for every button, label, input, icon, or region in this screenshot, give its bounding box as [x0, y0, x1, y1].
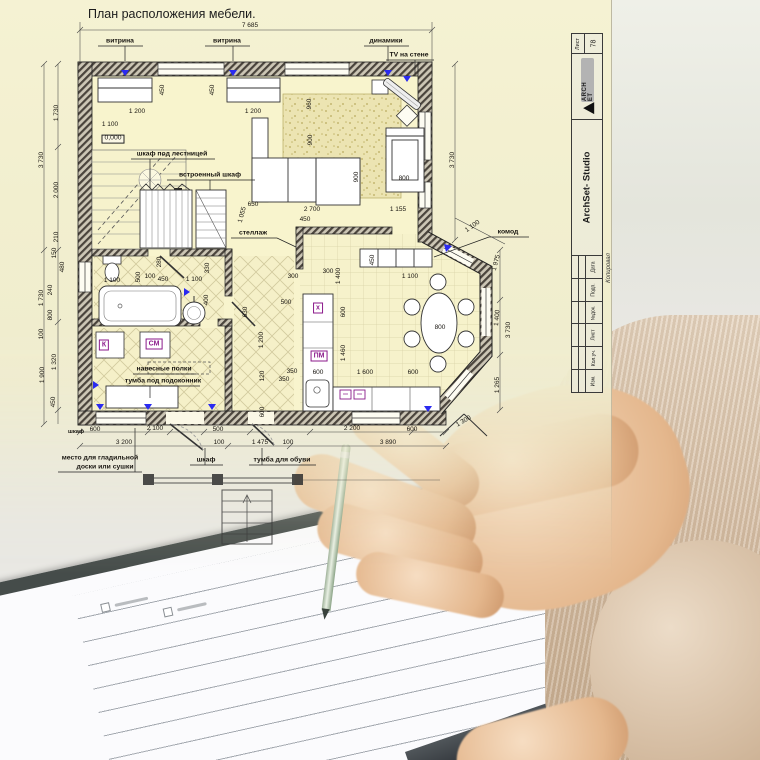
dimension-text: 350 [287, 369, 298, 376]
sheet-label: Лист [575, 38, 581, 50]
dimension-text: 2 700 [304, 207, 320, 214]
dimension-text: 800 [435, 325, 446, 332]
dimension-text: 900 [354, 172, 361, 183]
dimension-text: 1 200 [245, 109, 261, 116]
dimension-text: 7 685 [242, 23, 258, 30]
dimension-text: 350 [279, 377, 290, 384]
dimension-text: 600 [407, 427, 418, 434]
furniture-label: динамики [369, 39, 402, 46]
revision-table: Дата Подп. №док. Лист Кол.уч. Изм. [572, 256, 602, 392]
dimension-text: 1 200 [129, 109, 145, 116]
dimension-text: 450 [210, 85, 217, 96]
dimension-text: 280 [157, 257, 164, 268]
furniture-label: тумба под подоконник [125, 379, 201, 386]
sheet-number: 78 [590, 40, 597, 48]
revision-col [572, 256, 579, 392]
furniture-label: шкаф [68, 430, 84, 436]
dimension-text: 450 [300, 217, 311, 224]
furniture-label: навесные полки [136, 367, 191, 374]
copied-label-cell: Копировал [603, 238, 615, 298]
dimension-text: 120 [260, 371, 267, 382]
studio-name-cell: ArchSet- Studio [572, 120, 602, 256]
dimension-text: 500 [213, 427, 224, 434]
dimension-text: 3 200 [116, 440, 132, 447]
dimension-text: 1 100 [104, 278, 120, 285]
dimension-text: 1 475 [252, 440, 268, 447]
furniture-label: стеллаж [239, 231, 267, 238]
dimension-text: 500 [281, 300, 292, 307]
dimension-text: 1 265 [495, 377, 502, 393]
dimension-text: 3 730 [506, 322, 513, 338]
dimension-text: 330 [205, 263, 212, 274]
dimension-text: 400 [204, 295, 211, 306]
dimension-text: 300 [288, 274, 299, 281]
copied-label: Копировал [606, 253, 612, 283]
dimension-text: 3 730 [450, 152, 457, 168]
studio-logo: ARCH ET [572, 54, 602, 120]
dimension-text: 600 [90, 427, 101, 434]
dimension-text: 1 100 [102, 122, 118, 129]
furniture-label: тумба для обуви [254, 458, 311, 465]
dimension-text: 1 900 [40, 367, 47, 383]
appliance-symbol: ПМ [311, 351, 328, 362]
dimension-text: 100 [39, 329, 46, 340]
logo-triangle-icon [583, 102, 594, 114]
furniture-label: шкаф под лестницей [137, 152, 208, 159]
furniture-label: место для гладильной [62, 456, 138, 463]
dimension-text: 1 730 [39, 290, 46, 306]
studio-name: ArchSet- Studio [582, 152, 593, 224]
dimension-text: 2 100 [147, 426, 163, 433]
dimension-text: 1 320 [52, 354, 59, 370]
appliance-symbol: х [313, 303, 323, 314]
dimension-text: 300 [323, 269, 334, 276]
logo-text-top: ARCH [582, 82, 588, 101]
dimension-text: 1 460 [341, 345, 348, 361]
furniture-label: комод [498, 230, 519, 237]
dimension-text: 1 730 [54, 105, 61, 121]
furniture-label: витрина [213, 39, 241, 46]
dimension-text: 3 730 [39, 152, 46, 168]
dimension-text: 600 [313, 370, 324, 377]
dimension-text: 1 400 [494, 310, 502, 327]
revision-label: Лист [591, 330, 597, 341]
revision-col [579, 256, 586, 392]
dimension-text: 600 [408, 370, 419, 377]
sheet-number-row: Лист 78 [572, 34, 602, 54]
dimension-text: 450 [51, 397, 58, 408]
revision-label: Дата [591, 261, 597, 272]
dimension-text: 210 [54, 232, 61, 243]
dimension-text: 480 [60, 262, 67, 273]
dimension-text: 630 [243, 307, 250, 318]
furniture-label: TV на стене [389, 53, 428, 60]
dimension-text: 600 [260, 407, 267, 418]
montage-image: 7 6854501 2004501 2001 10096090090080065… [0, 0, 760, 760]
dimension-text: 900 [308, 135, 315, 146]
title-block: Лист 78 ARCH ET ArchSet- Studio [571, 33, 603, 393]
furniture-label: доски или сушки [77, 465, 134, 472]
dimension-text: 800 [48, 310, 55, 321]
furniture-label: шкаф [197, 458, 216, 465]
dimension-text: 1 200 [259, 332, 266, 348]
dimension-text: 1 100 [402, 274, 418, 281]
dimension-text: 500 [136, 272, 143, 283]
dimension-text: 100 [283, 440, 294, 447]
holding-thumb [448, 689, 636, 760]
dimension-text: 650 [248, 202, 259, 209]
dimension-text: 1 975 [492, 254, 502, 271]
dimension-text: 100 [145, 274, 156, 281]
dimension-text: 240 [48, 285, 55, 296]
dimension-text: 600 [341, 307, 348, 318]
drawing-title: План расположения мебели. [88, 7, 256, 21]
dimension-text: 800 [399, 176, 410, 183]
revision-labels-col: Дата Подп. №док. Лист Кол.уч. Изм. [586, 256, 602, 392]
revision-label: Изм. [591, 376, 597, 387]
revision-label: Кол.уч. [591, 350, 597, 366]
dimension-text: 2 000 [54, 182, 61, 198]
dimension-text: 3 890 [380, 440, 396, 447]
furniture-label: витрина [106, 39, 134, 46]
logo-text-bottom: ET [588, 82, 594, 101]
revision-label: Подп. [591, 283, 597, 296]
level-mark: 0,000 [101, 135, 124, 144]
revision-label: №док. [591, 305, 597, 320]
dimension-text: 1 055 [238, 206, 248, 223]
dimension-text: 100 [214, 440, 225, 447]
dimension-text: 450 [160, 85, 167, 96]
furniture-label: встроенный шкаф [179, 173, 241, 180]
dimension-text: 450 [158, 277, 169, 284]
dimension-text: 1 155 [390, 207, 406, 214]
dimension-text: 150 [52, 248, 59, 259]
appliance-symbol: СМ [146, 339, 163, 350]
dimension-text: 1 300 [455, 415, 472, 429]
dimension-text: 1 100 [464, 220, 481, 235]
dimension-text: 1 100 [186, 277, 202, 284]
plan-annotations: 7 6854501 2004501 2001 10096090090080065… [0, 0, 760, 560]
dimension-text: 450 [370, 255, 377, 266]
dimension-text: 2 200 [344, 426, 360, 433]
dimension-text: 1 400 [336, 268, 343, 284]
dimension-text: 1 600 [357, 370, 373, 377]
appliance-symbol: К [99, 340, 109, 351]
dimension-text: 960 [307, 99, 314, 110]
